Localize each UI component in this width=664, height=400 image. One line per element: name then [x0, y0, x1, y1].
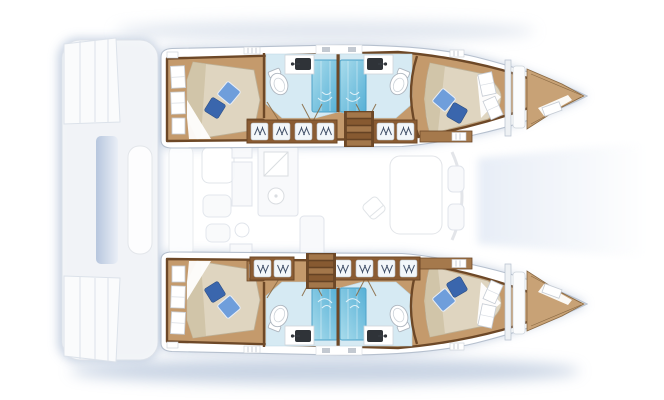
- stairs-bottom-hull: [306, 253, 336, 289]
- cockpit-table: [202, 147, 234, 183]
- settee-cushion: [448, 166, 464, 192]
- cockpit-seat: [203, 195, 231, 217]
- dining-area: [361, 152, 464, 240]
- bow-deck-shading: [478, 142, 648, 258]
- cockpit-seat: [206, 224, 230, 242]
- galley: [230, 146, 324, 262]
- cockpit-bench: [128, 146, 152, 254]
- wardrobes-top-left: [247, 120, 337, 143]
- transom-steps-top: [64, 38, 120, 124]
- salon-table: [390, 156, 442, 234]
- catamaran-floorplan: [0, 0, 664, 400]
- transom-steps-bottom: [64, 276, 120, 362]
- water-shadow-top: [115, 21, 535, 41]
- wardrobes-top-right: [373, 120, 417, 143]
- stairs-top-hull: [344, 111, 374, 147]
- floorplan-svg: [0, 0, 664, 400]
- settee-cushion: [448, 204, 464, 230]
- stern-platform: [96, 136, 118, 264]
- chart-chair: [361, 195, 386, 220]
- wardrobes-bottom-right: [330, 257, 420, 280]
- wardrobes-bottom-left: [250, 257, 294, 280]
- aft-salon-bench: [169, 143, 193, 259]
- water-shadow-bottom: [70, 358, 580, 384]
